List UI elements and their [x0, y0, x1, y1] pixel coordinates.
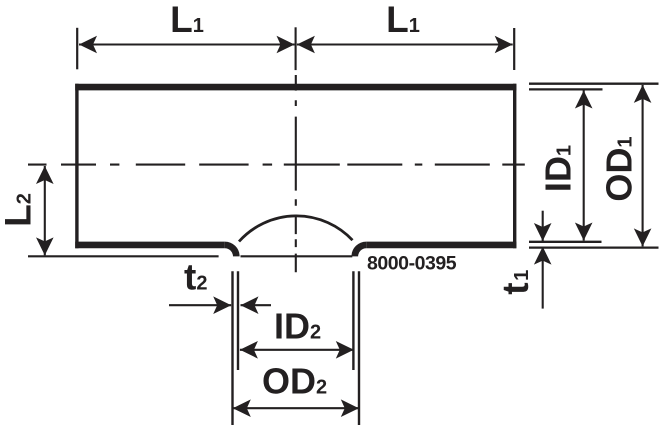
- svg-text:ID2: ID2: [274, 306, 321, 347]
- svg-text:L2: L2: [0, 193, 39, 227]
- svg-text:t1: t1: [495, 268, 536, 294]
- svg-text:8000-0395: 8000-0395: [367, 253, 457, 275]
- svg-text:OD1: OD1: [598, 136, 639, 201]
- svg-text:ID1: ID1: [537, 145, 578, 192]
- svg-text:L1: L1: [386, 0, 420, 40]
- svg-text:OD2: OD2: [262, 361, 327, 402]
- svg-text:L1: L1: [170, 0, 204, 40]
- svg-text:t2: t2: [184, 257, 207, 298]
